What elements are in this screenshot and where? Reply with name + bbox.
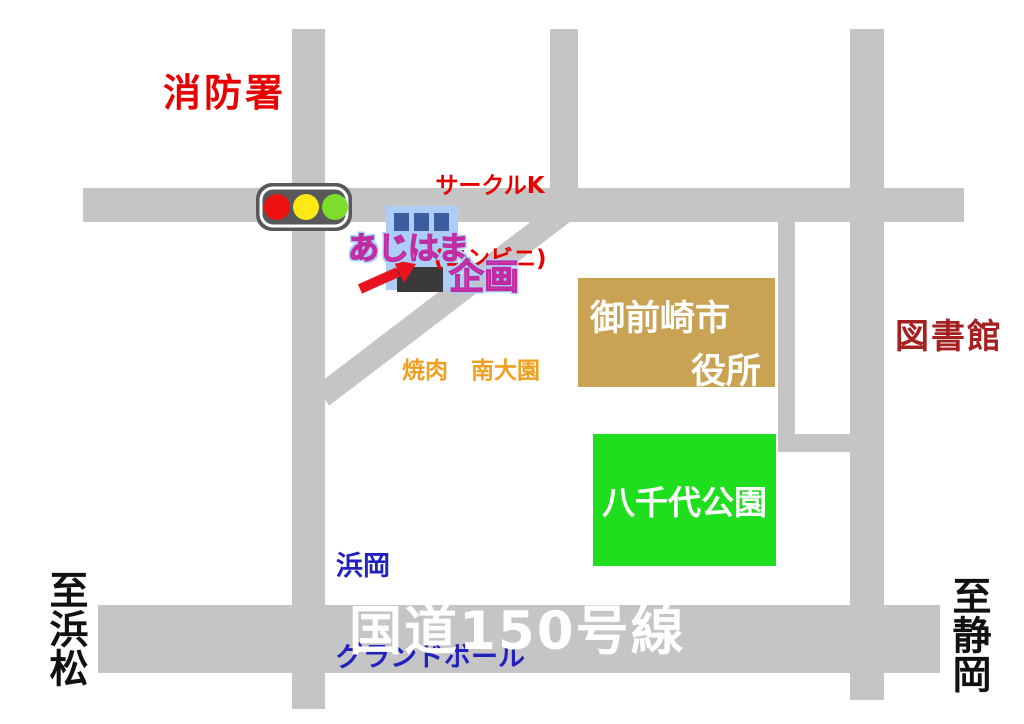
traffic-light-green [322, 194, 348, 220]
park-area: 八千代公園 [593, 434, 776, 566]
access-map: 御前崎市 役所 八千代公園 消防署 サークルK (コンビニ) あじはま 企画 焼… [0, 0, 1024, 724]
route-150-label: 国道150号線 [349, 604, 686, 660]
ajihama-label-line2: 企画 [449, 249, 519, 300]
road-connector-horizontal [778, 434, 850, 452]
city-hall-building: 御前崎市 役所 [578, 278, 775, 387]
fire-station-label: 消防署 [163, 74, 286, 114]
traffic-light-yellow [293, 194, 319, 220]
library-label: 図書館 [895, 320, 1003, 356]
city-hall-label-line1: 御前崎市 [578, 278, 775, 341]
bowling-label-line1: 浜岡 [336, 552, 525, 582]
road-right-vertical [850, 29, 884, 700]
circle-k-label-line1: サークルK [420, 174, 560, 198]
park-label: 八千代公園 [602, 476, 767, 524]
road-connector-vertical [778, 210, 795, 452]
to-hamamatsu-label: 至浜松 [44, 570, 85, 687]
city-hall-label-line2: 役所 [578, 343, 775, 394]
traffic-light-red [264, 194, 290, 220]
to-shizuoka-label: 至静岡 [947, 576, 988, 693]
yakiniku-label: 焼肉 南大園 [402, 359, 540, 383]
traffic-light-icon [256, 183, 352, 231]
